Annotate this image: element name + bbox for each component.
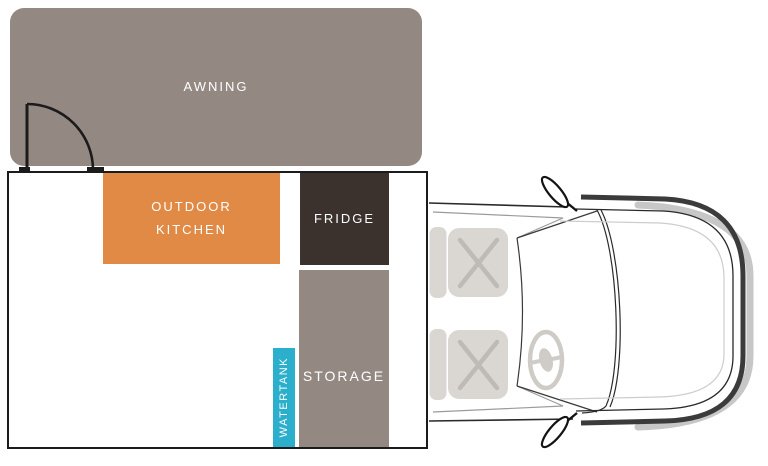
a-pillar-top <box>517 211 597 238</box>
watertank-area: WATERTANK <box>273 348 295 447</box>
dashboard-curve <box>517 238 523 386</box>
fridge-label: FRIDGE <box>314 208 375 230</box>
seat-left <box>430 227 509 298</box>
side-mirror-top <box>538 174 577 211</box>
seat-left-cross-icon <box>460 240 497 286</box>
chassis-line-top <box>429 203 567 207</box>
vehicle-cab-top-view <box>429 174 750 451</box>
storage-area: STORAGE <box>299 270 389 447</box>
mirror-arm-top <box>566 202 577 211</box>
seat-right <box>430 329 509 400</box>
chassis-line-bottom <box>429 419 573 421</box>
a-pillar-bottom <box>517 386 597 412</box>
cab-side-line-bottom <box>433 386 563 412</box>
seat-left-cushion <box>448 228 508 297</box>
windshield-line-inner <box>601 210 620 407</box>
mirror-arm-bottom <box>566 413 577 422</box>
side-mirror-bottom <box>538 413 577 450</box>
storage-label: STORAGE <box>303 365 385 389</box>
front-body-edge <box>576 209 733 411</box>
front-bumper <box>581 197 743 423</box>
seat-right-backrest <box>430 329 447 400</box>
awning-label: AWNING <box>184 76 249 98</box>
awning-area: AWNING <box>10 8 422 166</box>
campervan-floorplan: AWNING OUTDOOR KITCHEN FRIDGE STORAGE WA… <box>0 0 768 466</box>
steering-wheel-icon <box>530 332 562 388</box>
mirror-blade-bottom <box>538 414 572 451</box>
hood-inner-line <box>560 221 724 399</box>
seat-right-cushion <box>448 330 508 399</box>
watertank-label: WATERTANK <box>279 357 290 437</box>
seat-right-cross-icon <box>460 342 497 388</box>
seat-left-backrest <box>430 227 447 298</box>
steering-wheel-rim <box>530 332 562 388</box>
windshield-line-outer <box>582 210 616 413</box>
camper-body-outline: OUTDOOR KITCHEN FRIDGE STORAGE WATERTANK <box>7 171 428 449</box>
mirror-blade-top <box>538 174 572 211</box>
steering-wheel-hub <box>537 347 556 374</box>
outdoor-kitchen-label: OUTDOOR KITCHEN <box>151 196 231 240</box>
steering-wheel-spokes <box>530 357 562 363</box>
cab-side-line-top <box>433 212 563 238</box>
fridge-area: FRIDGE <box>300 173 389 265</box>
outdoor-kitchen-area: OUTDOOR KITCHEN <box>103 173 280 264</box>
bumper-shadow <box>638 205 750 427</box>
